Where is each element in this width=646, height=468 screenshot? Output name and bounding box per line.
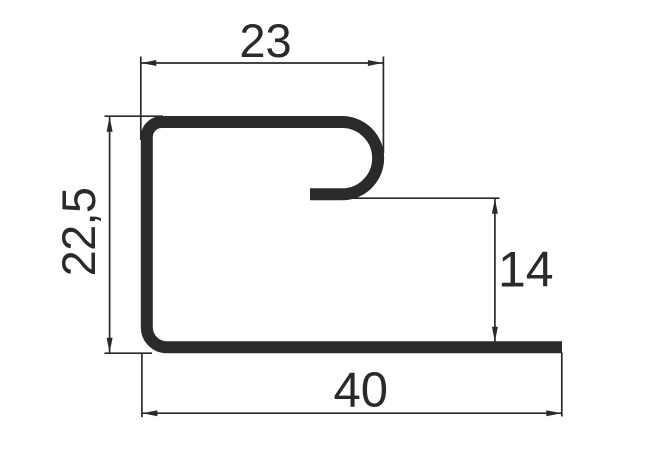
svg-text:23: 23 <box>239 14 291 67</box>
svg-text:40: 40 <box>334 364 389 418</box>
svg-text:14: 14 <box>498 242 554 298</box>
svg-text:22,5: 22,5 <box>52 188 105 277</box>
